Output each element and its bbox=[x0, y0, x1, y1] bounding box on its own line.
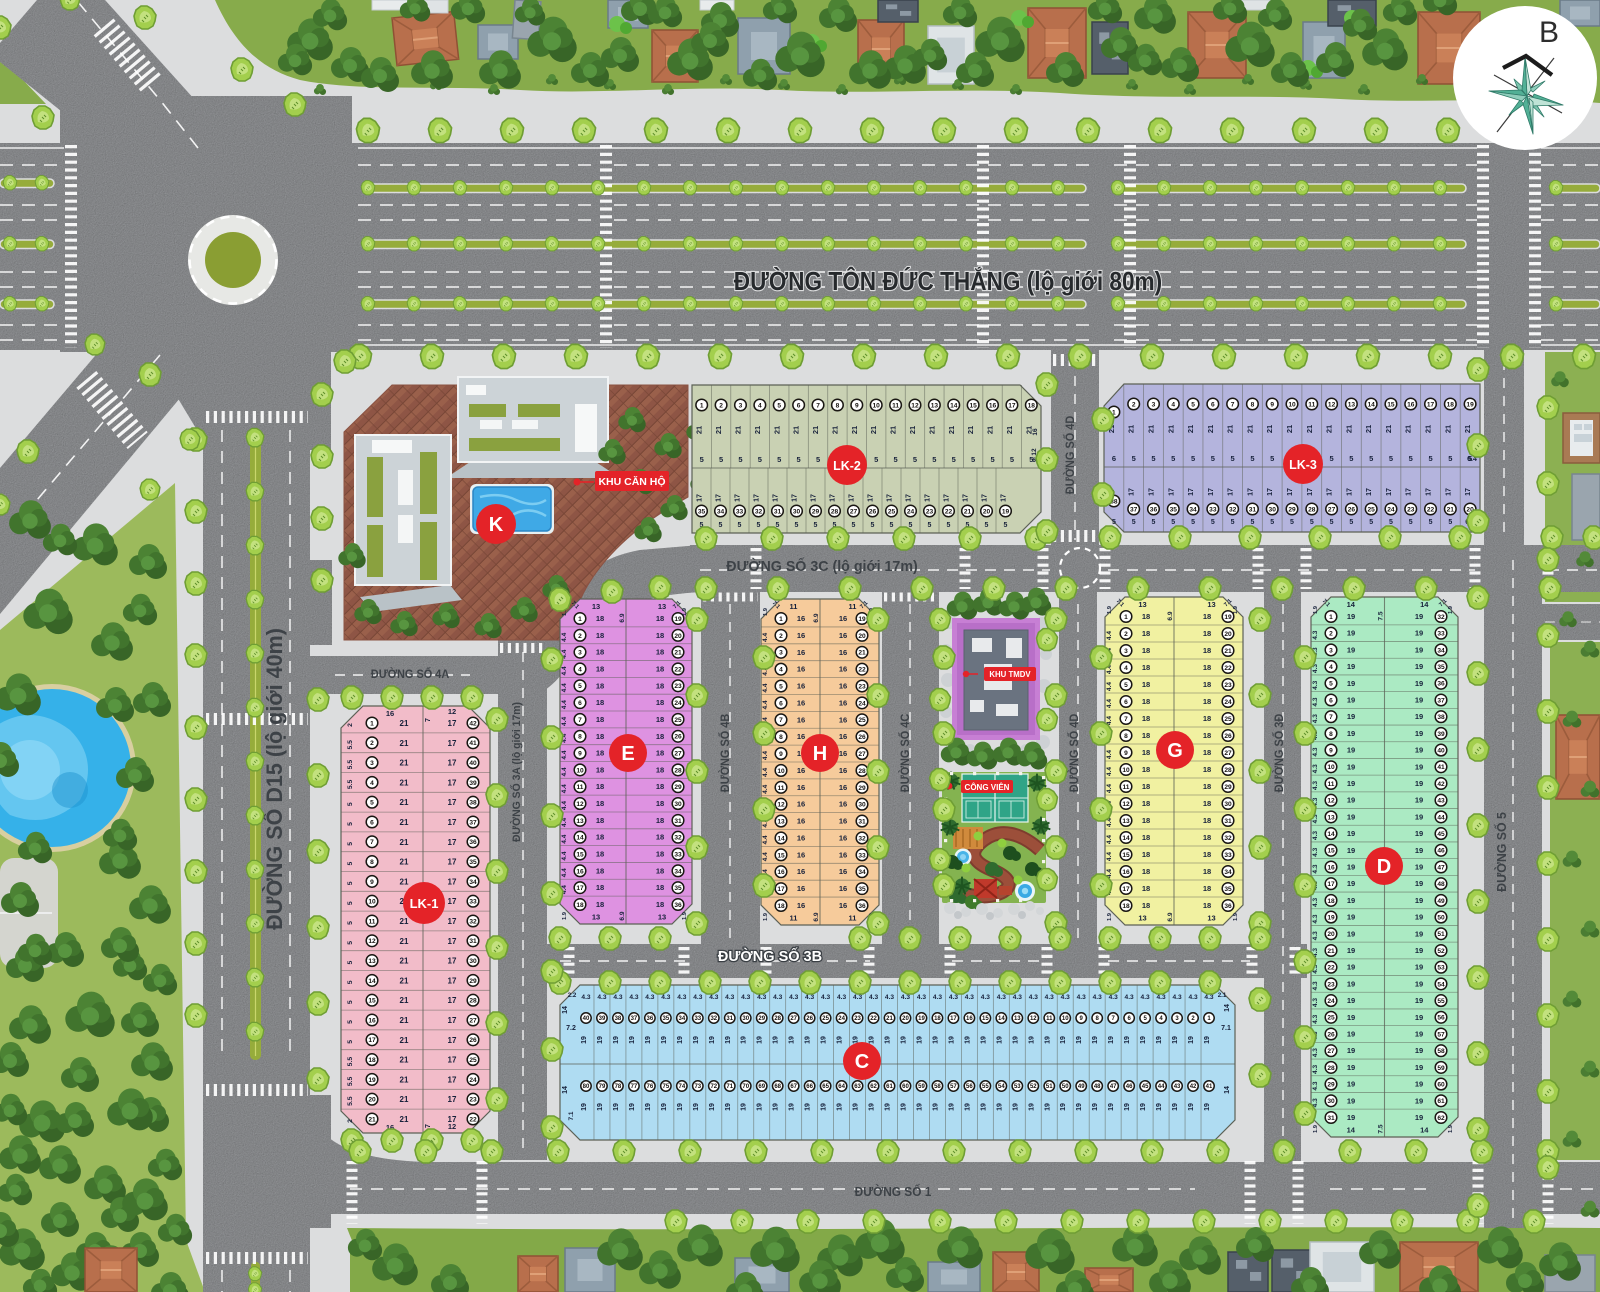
svg-text:21: 21 bbox=[1305, 425, 1314, 433]
svg-text:5: 5 bbox=[1191, 401, 1195, 408]
svg-text:19: 19 bbox=[1224, 614, 1232, 621]
svg-text:5: 5 bbox=[1409, 519, 1413, 526]
svg-text:9: 9 bbox=[578, 751, 582, 758]
svg-text:15: 15 bbox=[982, 1016, 989, 1022]
svg-text:37: 37 bbox=[1130, 506, 1138, 513]
svg-text:34: 34 bbox=[717, 508, 725, 515]
svg-text:17: 17 bbox=[1427, 401, 1435, 408]
svg-text:19: 19 bbox=[1002, 508, 1010, 515]
svg-text:18: 18 bbox=[596, 833, 604, 842]
svg-text:70: 70 bbox=[742, 1084, 749, 1090]
svg-text:16: 16 bbox=[839, 682, 847, 691]
svg-text:16: 16 bbox=[797, 682, 805, 691]
svg-text:5: 5 bbox=[1250, 454, 1254, 463]
svg-text:4.4: 4.4 bbox=[762, 751, 769, 760]
svg-text:26: 26 bbox=[806, 1016, 813, 1022]
svg-text:7: 7 bbox=[816, 402, 820, 409]
svg-text:18: 18 bbox=[368, 1057, 376, 1064]
svg-text:13: 13 bbox=[658, 913, 666, 922]
svg-text:18: 18 bbox=[1203, 850, 1211, 859]
svg-text:8: 8 bbox=[1251, 401, 1255, 408]
svg-text:7: 7 bbox=[1329, 714, 1333, 721]
svg-text:19: 19 bbox=[1060, 1036, 1067, 1044]
svg-text:16: 16 bbox=[839, 800, 847, 809]
svg-text:18: 18 bbox=[656, 782, 664, 791]
svg-text:42: 42 bbox=[469, 720, 477, 727]
svg-text:36: 36 bbox=[858, 903, 866, 910]
svg-text:7: 7 bbox=[1231, 401, 1235, 408]
svg-text:19: 19 bbox=[964, 1036, 971, 1044]
svg-text:32: 32 bbox=[1224, 835, 1232, 842]
svg-text:11: 11 bbox=[369, 918, 376, 925]
svg-text:17: 17 bbox=[754, 494, 761, 502]
svg-text:19: 19 bbox=[1347, 1030, 1355, 1039]
svg-text:16: 16 bbox=[1327, 864, 1335, 871]
svg-text:23: 23 bbox=[926, 508, 934, 515]
svg-text:21: 21 bbox=[927, 426, 936, 434]
svg-text:68: 68 bbox=[774, 1084, 781, 1090]
svg-text:19: 19 bbox=[837, 1036, 844, 1044]
svg-text:4.3: 4.3 bbox=[645, 994, 654, 1001]
svg-text:19: 19 bbox=[1347, 645, 1355, 654]
svg-text:19: 19 bbox=[581, 1103, 588, 1111]
svg-text:13: 13 bbox=[1138, 600, 1146, 609]
svg-text:11: 11 bbox=[849, 914, 857, 923]
svg-text:4: 4 bbox=[1171, 401, 1175, 408]
svg-text:5: 5 bbox=[578, 683, 582, 690]
svg-text:5: 5 bbox=[1329, 681, 1333, 688]
svg-text:5: 5 bbox=[738, 455, 742, 464]
svg-text:47: 47 bbox=[1110, 1084, 1117, 1090]
svg-text:17: 17 bbox=[1168, 488, 1175, 496]
svg-text:32: 32 bbox=[674, 835, 682, 842]
svg-text:27: 27 bbox=[1327, 1048, 1335, 1055]
svg-text:19: 19 bbox=[677, 1103, 684, 1111]
svg-text:36: 36 bbox=[674, 902, 682, 909]
svg-text:14: 14 bbox=[1224, 1004, 1231, 1012]
svg-text:7.1: 7.1 bbox=[1221, 1025, 1231, 1032]
svg-text:19: 19 bbox=[1044, 1036, 1051, 1044]
svg-text:7.5: 7.5 bbox=[1378, 1124, 1385, 1133]
svg-text:18: 18 bbox=[1203, 714, 1211, 723]
svg-text:16: 16 bbox=[797, 833, 805, 842]
svg-text:50: 50 bbox=[1437, 915, 1445, 922]
svg-text:16: 16 bbox=[797, 867, 805, 876]
svg-text:19: 19 bbox=[805, 1036, 812, 1044]
svg-text:19: 19 bbox=[1347, 679, 1355, 688]
svg-text:19: 19 bbox=[1415, 879, 1423, 888]
svg-text:36: 36 bbox=[647, 1016, 654, 1022]
svg-text:20: 20 bbox=[983, 508, 991, 515]
svg-text:5: 5 bbox=[719, 522, 723, 529]
svg-text:19: 19 bbox=[1347, 1080, 1355, 1089]
svg-text:21: 21 bbox=[1443, 425, 1452, 433]
svg-text:26: 26 bbox=[1224, 733, 1232, 740]
svg-text:19: 19 bbox=[613, 1103, 620, 1111]
svg-text:19: 19 bbox=[837, 1103, 844, 1111]
svg-text:18: 18 bbox=[596, 782, 604, 791]
svg-text:19: 19 bbox=[858, 616, 866, 623]
svg-text:19: 19 bbox=[1108, 1036, 1115, 1044]
svg-text:19: 19 bbox=[1347, 963, 1355, 972]
svg-text:5.5: 5.5 bbox=[347, 779, 354, 789]
svg-text:19: 19 bbox=[1347, 929, 1355, 938]
svg-text:19: 19 bbox=[581, 1036, 588, 1044]
svg-text:17: 17 bbox=[1406, 488, 1413, 496]
svg-text:21: 21 bbox=[400, 739, 409, 748]
svg-text:18: 18 bbox=[1203, 765, 1211, 774]
svg-text:1.9: 1.9 bbox=[1448, 1124, 1454, 1133]
svg-text:4.4: 4.4 bbox=[1106, 699, 1113, 708]
svg-text:5: 5 bbox=[347, 1000, 354, 1004]
svg-text:26: 26 bbox=[869, 508, 877, 515]
svg-text:5: 5 bbox=[738, 522, 742, 529]
svg-text:18: 18 bbox=[656, 816, 664, 825]
svg-text:21: 21 bbox=[1005, 426, 1014, 434]
svg-text:18: 18 bbox=[1203, 816, 1211, 825]
svg-text:23: 23 bbox=[854, 1016, 861, 1022]
svg-text:4.4: 4.4 bbox=[561, 801, 568, 810]
svg-text:5: 5 bbox=[932, 455, 936, 464]
svg-text:12: 12 bbox=[911, 402, 919, 409]
svg-text:21: 21 bbox=[850, 426, 859, 434]
svg-text:5: 5 bbox=[1270, 454, 1274, 463]
svg-text:18: 18 bbox=[1028, 402, 1036, 409]
svg-text:4.3: 4.3 bbox=[1312, 630, 1319, 639]
svg-text:16: 16 bbox=[368, 1017, 376, 1024]
svg-text:33: 33 bbox=[1437, 631, 1445, 638]
svg-text:19: 19 bbox=[741, 1036, 748, 1044]
svg-text:49: 49 bbox=[1078, 1084, 1085, 1090]
svg-text:17: 17 bbox=[1366, 488, 1373, 496]
svg-text:11: 11 bbox=[892, 402, 899, 409]
svg-text:13: 13 bbox=[1207, 914, 1215, 923]
svg-text:15: 15 bbox=[969, 402, 977, 409]
svg-text:19: 19 bbox=[1347, 913, 1355, 922]
svg-text:62: 62 bbox=[870, 1084, 877, 1090]
svg-text:42: 42 bbox=[1190, 1084, 1197, 1090]
svg-text:5: 5 bbox=[347, 901, 354, 905]
svg-text:18: 18 bbox=[656, 715, 664, 724]
svg-text:4: 4 bbox=[1124, 665, 1128, 672]
svg-text:4.3: 4.3 bbox=[949, 994, 958, 1001]
svg-text:16: 16 bbox=[797, 850, 805, 859]
svg-text:13: 13 bbox=[592, 602, 600, 611]
svg-text:19: 19 bbox=[1347, 879, 1355, 888]
svg-text:28: 28 bbox=[831, 508, 839, 515]
svg-text:29: 29 bbox=[674, 784, 682, 791]
svg-text:18: 18 bbox=[656, 681, 664, 690]
svg-text:4: 4 bbox=[370, 780, 374, 787]
svg-text:2: 2 bbox=[370, 740, 374, 747]
svg-text:9: 9 bbox=[1270, 401, 1274, 408]
svg-text:19: 19 bbox=[1415, 1046, 1423, 1055]
svg-text:57: 57 bbox=[950, 1084, 957, 1090]
svg-text:14: 14 bbox=[1224, 1086, 1231, 1094]
svg-text:22: 22 bbox=[1327, 965, 1335, 972]
svg-text:6: 6 bbox=[779, 700, 783, 707]
svg-text:52: 52 bbox=[1030, 1084, 1037, 1090]
svg-text:17: 17 bbox=[448, 957, 457, 966]
svg-text:4.4: 4.4 bbox=[762, 632, 769, 641]
svg-text:18: 18 bbox=[1142, 731, 1150, 740]
svg-text:61: 61 bbox=[886, 1084, 893, 1090]
svg-text:4.4: 4.4 bbox=[561, 700, 568, 709]
svg-text:21: 21 bbox=[1224, 648, 1232, 655]
svg-text:19: 19 bbox=[677, 1036, 684, 1044]
svg-text:5: 5 bbox=[1448, 519, 1452, 526]
svg-text:36: 36 bbox=[1224, 903, 1232, 910]
svg-text:4.4: 4.4 bbox=[561, 666, 568, 675]
svg-text:12: 12 bbox=[576, 801, 584, 808]
svg-text:17: 17 bbox=[1129, 488, 1136, 496]
svg-text:40: 40 bbox=[1437, 748, 1445, 755]
svg-text:25: 25 bbox=[1327, 1015, 1335, 1022]
svg-text:5: 5 bbox=[1152, 519, 1156, 526]
svg-text:5: 5 bbox=[985, 522, 989, 529]
svg-text:28: 28 bbox=[1327, 1065, 1335, 1072]
svg-text:4.3: 4.3 bbox=[677, 994, 686, 1001]
svg-text:17: 17 bbox=[448, 1095, 457, 1104]
svg-text:19: 19 bbox=[645, 1103, 652, 1111]
svg-text:16: 16 bbox=[797, 732, 805, 741]
svg-text:50: 50 bbox=[1062, 1084, 1069, 1090]
svg-text:18: 18 bbox=[596, 614, 604, 623]
svg-text:5: 5 bbox=[700, 455, 704, 464]
svg-text:21: 21 bbox=[1226, 425, 1235, 433]
svg-text:19: 19 bbox=[773, 1103, 780, 1111]
svg-text:19: 19 bbox=[1415, 629, 1423, 638]
svg-text:8: 8 bbox=[779, 734, 783, 741]
svg-text:17: 17 bbox=[448, 778, 457, 787]
svg-text:47: 47 bbox=[1437, 864, 1445, 871]
svg-text:2: 2 bbox=[719, 402, 723, 409]
svg-text:5: 5 bbox=[347, 941, 354, 945]
svg-text:5: 5 bbox=[1369, 454, 1373, 463]
svg-text:ĐƯỜNG SỐ 3C (lộ giới 17m): ĐƯỜNG SỐ 3C (lộ giới 17m) bbox=[726, 557, 918, 575]
svg-text:8: 8 bbox=[836, 402, 840, 409]
svg-text:9: 9 bbox=[1124, 750, 1128, 757]
svg-text:16: 16 bbox=[797, 631, 805, 640]
svg-text:19: 19 bbox=[1415, 929, 1423, 938]
svg-text:21: 21 bbox=[1404, 425, 1413, 433]
svg-text:4.3: 4.3 bbox=[1172, 994, 1181, 1001]
svg-text:ĐƯỜNG SỐ 4D: ĐƯỜNG SỐ 4D bbox=[1067, 714, 1081, 792]
svg-text:19: 19 bbox=[1415, 712, 1423, 721]
svg-text:36: 36 bbox=[1437, 681, 1445, 688]
svg-text:21: 21 bbox=[400, 818, 409, 827]
svg-text:14: 14 bbox=[777, 835, 785, 842]
svg-text:5: 5 bbox=[874, 455, 878, 464]
svg-text:4.3: 4.3 bbox=[853, 994, 862, 1001]
svg-text:7.5: 7.5 bbox=[1378, 611, 1385, 620]
svg-text:21: 21 bbox=[400, 838, 409, 847]
svg-text:1.9: 1.9 bbox=[1233, 605, 1239, 614]
svg-text:7.1: 7.1 bbox=[568, 1111, 575, 1120]
svg-text:59: 59 bbox=[1437, 1065, 1445, 1072]
svg-text:16: 16 bbox=[797, 884, 805, 893]
svg-text:66: 66 bbox=[806, 1084, 813, 1090]
svg-text:25: 25 bbox=[858, 717, 866, 724]
svg-text:17: 17 bbox=[448, 1016, 457, 1025]
svg-text:4.3: 4.3 bbox=[1061, 994, 1070, 1001]
svg-text:ĐƯỜNG SỐ 3A (lộ giới 17m): ĐƯỜNG SỐ 3A (lộ giới 17m) bbox=[509, 702, 523, 842]
svg-text:4.3: 4.3 bbox=[597, 994, 606, 1001]
svg-text:9: 9 bbox=[370, 879, 374, 886]
svg-text:4.3: 4.3 bbox=[1312, 697, 1319, 706]
svg-text:4.4: 4.4 bbox=[1106, 835, 1113, 844]
svg-text:30: 30 bbox=[742, 1016, 749, 1022]
svg-text:4.3: 4.3 bbox=[1013, 994, 1022, 1001]
svg-text:18: 18 bbox=[596, 648, 604, 657]
svg-text:19: 19 bbox=[1347, 779, 1355, 788]
svg-text:60: 60 bbox=[1437, 1082, 1445, 1089]
svg-text:4.3: 4.3 bbox=[1077, 994, 1086, 1001]
svg-text:19: 19 bbox=[1347, 979, 1355, 988]
svg-text:18: 18 bbox=[596, 816, 604, 825]
svg-text:18: 18 bbox=[656, 799, 664, 808]
svg-text:13: 13 bbox=[1138, 914, 1146, 923]
svg-text:5: 5 bbox=[719, 455, 723, 464]
svg-text:4.4: 4.4 bbox=[1106, 750, 1113, 759]
svg-text:17: 17 bbox=[849, 494, 856, 502]
svg-text:11: 11 bbox=[1308, 401, 1315, 408]
svg-text:18: 18 bbox=[1203, 748, 1211, 757]
svg-text:5: 5 bbox=[913, 455, 917, 464]
svg-text:30: 30 bbox=[793, 508, 801, 515]
svg-text:18: 18 bbox=[1142, 765, 1150, 774]
svg-text:5: 5 bbox=[347, 1040, 354, 1044]
svg-text:10: 10 bbox=[873, 402, 881, 409]
svg-text:18: 18 bbox=[596, 732, 604, 741]
svg-text:18: 18 bbox=[1142, 748, 1150, 757]
svg-text:5.5: 5.5 bbox=[347, 740, 354, 750]
svg-text:28: 28 bbox=[674, 767, 682, 774]
svg-text:7: 7 bbox=[779, 717, 783, 724]
svg-text:16: 16 bbox=[839, 614, 847, 623]
svg-text:5: 5 bbox=[1428, 454, 1432, 463]
svg-text:11: 11 bbox=[778, 785, 785, 792]
svg-text:4.3: 4.3 bbox=[901, 994, 910, 1001]
svg-text:8: 8 bbox=[1329, 731, 1333, 738]
svg-text:18: 18 bbox=[1142, 714, 1150, 723]
svg-text:38: 38 bbox=[615, 1016, 622, 1022]
svg-text:16: 16 bbox=[386, 709, 394, 718]
svg-text:18: 18 bbox=[1142, 629, 1150, 638]
svg-text:18: 18 bbox=[656, 900, 664, 909]
svg-text:19: 19 bbox=[1415, 612, 1423, 621]
svg-text:34: 34 bbox=[858, 869, 866, 876]
svg-text:17: 17 bbox=[448, 996, 457, 1005]
svg-text:4.3: 4.3 bbox=[757, 994, 766, 1001]
svg-text:21: 21 bbox=[811, 426, 820, 434]
svg-text:19: 19 bbox=[869, 1036, 876, 1044]
svg-text:27: 27 bbox=[1224, 750, 1232, 757]
svg-text:21: 21 bbox=[772, 426, 781, 434]
svg-text:5: 5 bbox=[757, 522, 761, 529]
svg-text:24: 24 bbox=[907, 508, 915, 515]
svg-text:7: 7 bbox=[370, 839, 374, 846]
svg-text:60: 60 bbox=[902, 1084, 909, 1090]
svg-text:4.3: 4.3 bbox=[1312, 1048, 1319, 1057]
svg-text:18: 18 bbox=[656, 850, 664, 859]
svg-text:4.3: 4.3 bbox=[933, 994, 942, 1001]
svg-text:4.3: 4.3 bbox=[1312, 931, 1319, 940]
svg-text:35: 35 bbox=[674, 885, 682, 892]
svg-text:16: 16 bbox=[839, 749, 847, 758]
svg-text:17: 17 bbox=[982, 494, 989, 502]
svg-text:5: 5 bbox=[1329, 454, 1333, 463]
svg-text:25: 25 bbox=[888, 508, 896, 515]
svg-text:4.4: 4.4 bbox=[561, 750, 568, 759]
svg-text:4.3: 4.3 bbox=[1312, 998, 1319, 1007]
svg-text:4.3: 4.3 bbox=[1029, 994, 1038, 1001]
svg-text:19: 19 bbox=[1415, 996, 1423, 1005]
svg-text:21: 21 bbox=[1327, 948, 1335, 955]
svg-text:4.3: 4.3 bbox=[613, 994, 622, 1001]
svg-text:4.3: 4.3 bbox=[629, 994, 638, 1001]
svg-text:15: 15 bbox=[1327, 848, 1335, 855]
svg-text:19: 19 bbox=[1347, 1013, 1355, 1022]
svg-text:18: 18 bbox=[1203, 680, 1211, 689]
svg-text:23: 23 bbox=[469, 1097, 477, 1104]
svg-text:29: 29 bbox=[812, 508, 820, 515]
svg-text:5: 5 bbox=[1004, 522, 1008, 529]
svg-text:19: 19 bbox=[1347, 746, 1355, 755]
svg-text:13: 13 bbox=[368, 958, 376, 965]
svg-text:16: 16 bbox=[839, 867, 847, 876]
svg-text:KHU CĂN HỘ: KHU CĂN HỘ bbox=[598, 475, 665, 488]
svg-text:17: 17 bbox=[1001, 494, 1008, 502]
svg-text:4.4: 4.4 bbox=[762, 683, 769, 692]
svg-text:18: 18 bbox=[1142, 663, 1150, 672]
svg-text:17: 17 bbox=[448, 719, 457, 728]
svg-text:42: 42 bbox=[1437, 781, 1445, 788]
svg-text:19: 19 bbox=[980, 1036, 987, 1044]
svg-text:21: 21 bbox=[986, 426, 995, 434]
svg-text:16: 16 bbox=[777, 869, 785, 876]
svg-text:4.3: 4.3 bbox=[1312, 747, 1319, 756]
svg-text:21: 21 bbox=[792, 426, 801, 434]
svg-text:19: 19 bbox=[1347, 762, 1355, 771]
svg-text:5: 5 bbox=[952, 455, 956, 464]
svg-text:37: 37 bbox=[1437, 697, 1445, 704]
svg-text:17: 17 bbox=[1247, 488, 1254, 496]
svg-text:18: 18 bbox=[1142, 697, 1150, 706]
svg-text:80: 80 bbox=[583, 1084, 590, 1090]
svg-text:31: 31 bbox=[858, 819, 866, 826]
svg-text:19: 19 bbox=[853, 1103, 860, 1111]
svg-text:51: 51 bbox=[1046, 1084, 1053, 1090]
svg-text:19: 19 bbox=[1415, 913, 1423, 922]
svg-text:16: 16 bbox=[797, 901, 805, 910]
svg-text:55: 55 bbox=[1437, 998, 1445, 1005]
svg-text:23: 23 bbox=[1407, 506, 1415, 513]
svg-text:6.9: 6.9 bbox=[813, 912, 820, 921]
svg-text:15: 15 bbox=[1387, 401, 1395, 408]
svg-text:30: 30 bbox=[674, 801, 682, 808]
svg-text:17: 17 bbox=[576, 885, 584, 892]
svg-text:25: 25 bbox=[469, 1057, 477, 1064]
svg-text:10: 10 bbox=[1327, 764, 1335, 771]
svg-text:19: 19 bbox=[1140, 1103, 1147, 1111]
svg-text:4.4: 4.4 bbox=[1106, 631, 1113, 640]
svg-text:19: 19 bbox=[1415, 729, 1423, 738]
svg-text:77: 77 bbox=[631, 1084, 638, 1090]
svg-text:23: 23 bbox=[1327, 981, 1335, 988]
svg-text:16: 16 bbox=[839, 850, 847, 859]
svg-text:5: 5 bbox=[1132, 454, 1136, 463]
